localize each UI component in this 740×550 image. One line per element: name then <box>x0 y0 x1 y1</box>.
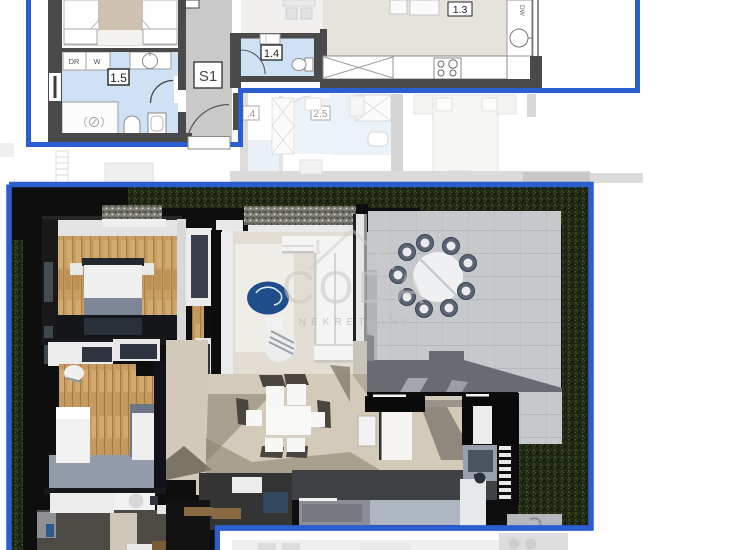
svg-text:NEKRETNINE: NEKRETNINE <box>299 317 413 328</box>
svg-text:W: W <box>93 57 101 66</box>
svg-text:DR: DR <box>69 57 80 66</box>
svg-text:1.4: 1.4 <box>264 48 279 60</box>
svg-text:DW: DW <box>518 5 525 17</box>
svg-text:S1: S1 <box>199 68 217 85</box>
svg-text:1.5: 1.5 <box>110 71 127 85</box>
svg-text:CODA: CODA <box>282 262 428 313</box>
svg-text:1.3: 1.3 <box>453 4 468 16</box>
svg-text:2.5: 2.5 <box>314 109 328 120</box>
svg-text:.4: .4 <box>247 109 256 120</box>
